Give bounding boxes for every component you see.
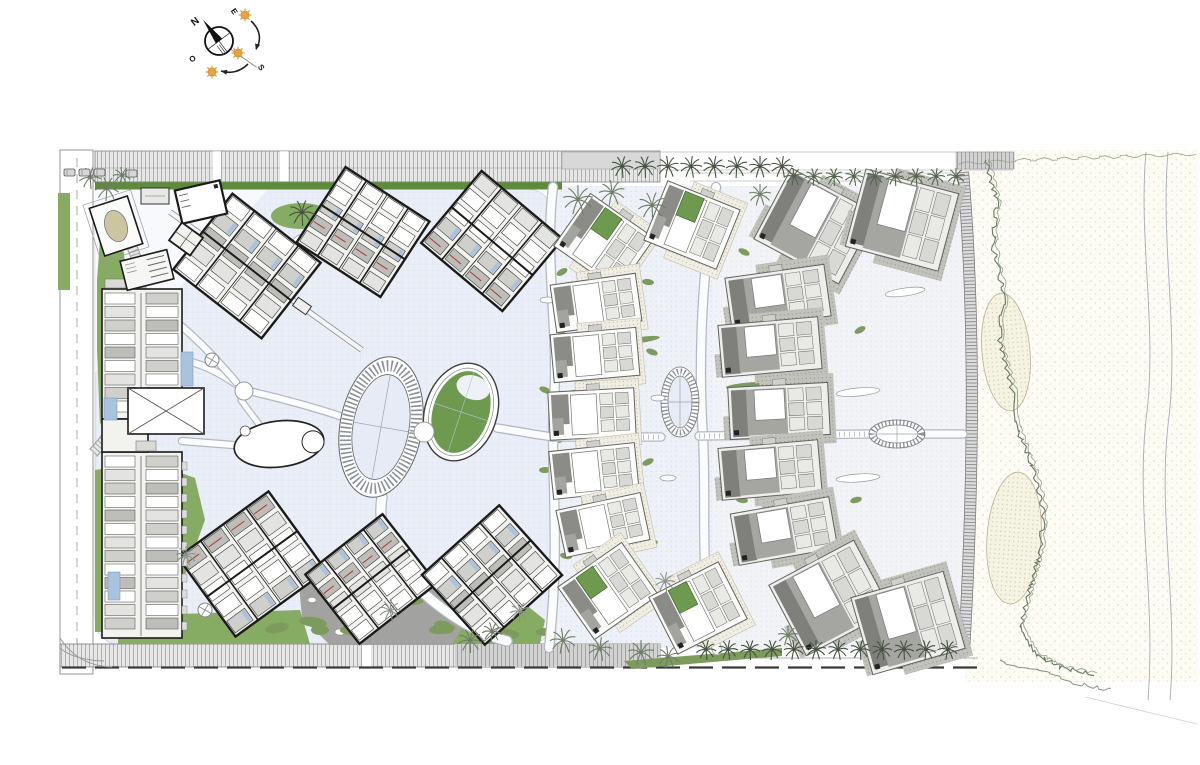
beach-sand: [965, 150, 1198, 682]
planter-oval: [651, 395, 665, 401]
car-icon: [94, 169, 105, 176]
planter-oval: [660, 475, 676, 481]
pool: [181, 352, 193, 386]
car-icon: [126, 170, 137, 177]
parked-cars: [64, 169, 137, 177]
walkway: [182, 441, 233, 445]
entrance-svc: [141, 188, 169, 204]
oval-plaza-node: [869, 420, 925, 448]
sun-icon: [206, 66, 219, 79]
oval-plaza-node: [661, 367, 699, 437]
lawn: [58, 193, 70, 290]
sun-icon: [239, 9, 252, 22]
path-node: [235, 382, 253, 400]
pool: [108, 572, 120, 600]
master-plan-drawing: NESO: [0, 0, 1200, 765]
path-node: [414, 422, 434, 442]
sun-icon: [232, 47, 245, 60]
master-plan-drawing-root: NESO: [0, 0, 1200, 765]
car-icon: [64, 169, 75, 176]
site-plan-stage: NESO: [0, 0, 1200, 765]
car-icon: [79, 169, 90, 176]
pool: [104, 398, 117, 420]
